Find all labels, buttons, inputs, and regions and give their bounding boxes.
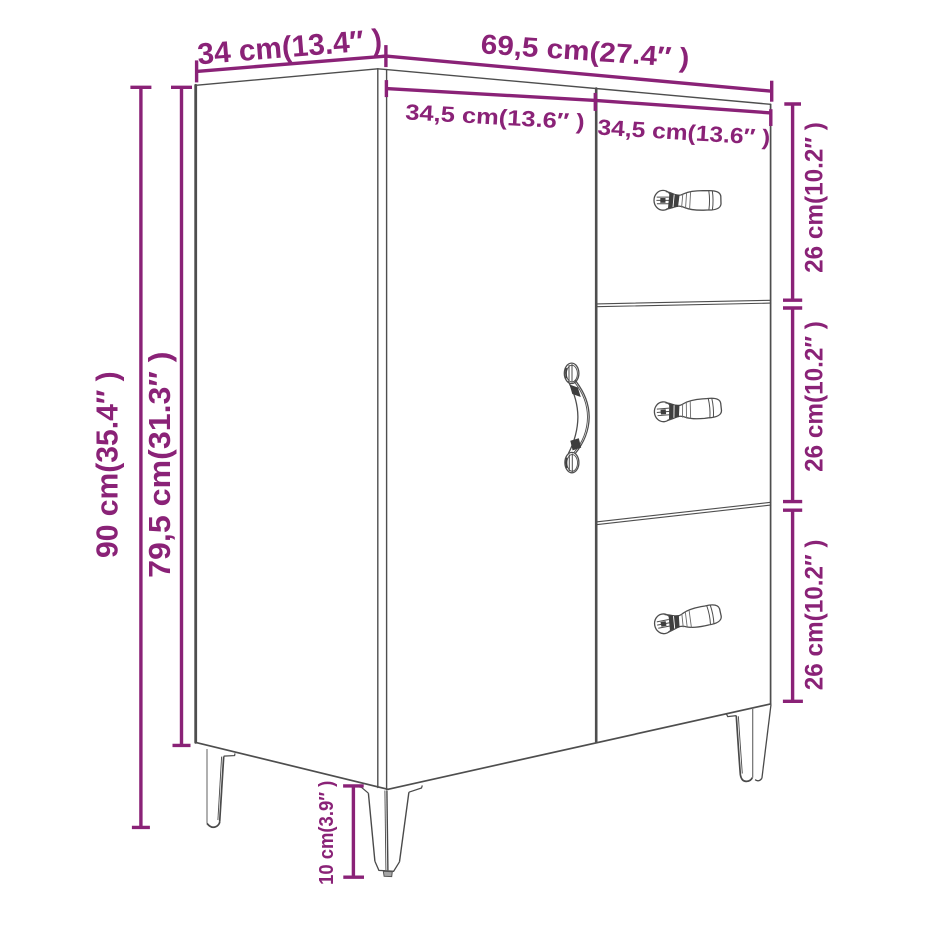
svg-text:90 cm(35.4″ ): 90 cm(35.4″ ) — [90, 371, 124, 558]
svg-text:26 cm(10.2″ ): 26 cm(10.2″ ) — [802, 540, 829, 691]
svg-text:26 cm(10.2″ ): 26 cm(10.2″ ) — [802, 122, 829, 273]
svg-text:10 cm(3.9″ ): 10 cm(3.9″ ) — [316, 781, 338, 885]
svg-text:26 cm(10.2″ ): 26 cm(10.2″ ) — [802, 321, 829, 472]
svg-text:79,5 cm(31.3″ ): 79,5 cm(31.3″ ) — [143, 352, 177, 578]
